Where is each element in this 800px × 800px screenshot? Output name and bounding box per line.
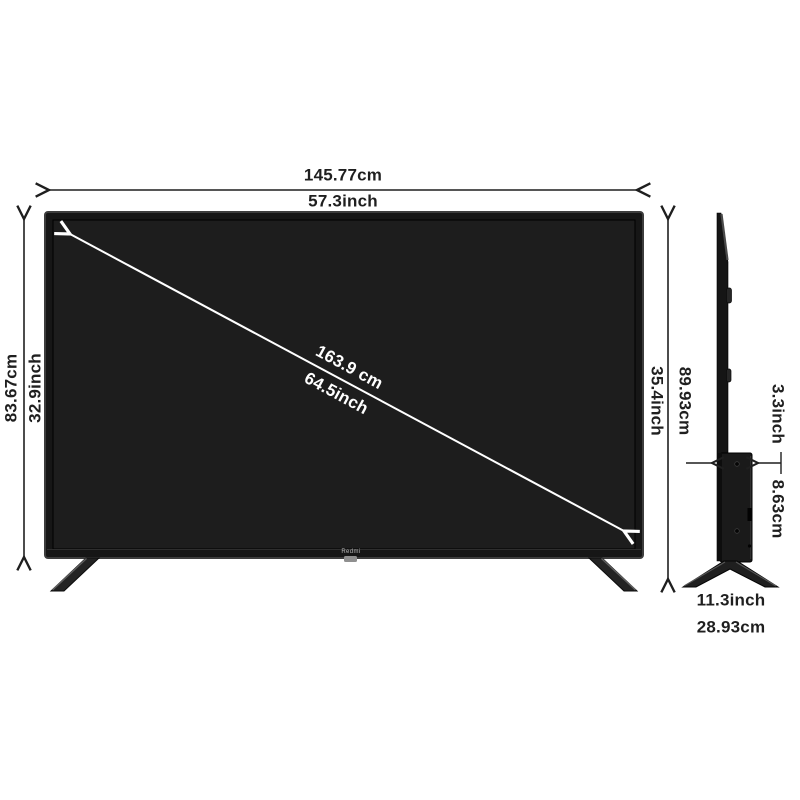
brand-logo: Redmi [341, 549, 360, 555]
stand-width-cm-label: 28.93cm [697, 619, 766, 638]
side-height-cm-label: 89.93cm [675, 367, 694, 436]
side-button-bump-lower [727, 369, 732, 382]
tv-side-stand [683, 561, 778, 587]
tv-left-foot [51, 558, 99, 591]
side-height-inch-label: 35.4inch [647, 366, 666, 436]
stand-width-inch-label: 11.3inch [697, 592, 766, 611]
tv-side-rear-box [720, 453, 752, 562]
tv-right-foot [589, 558, 637, 591]
depth-cm-label: 8.63cm [768, 480, 787, 539]
tv-side-view [683, 213, 778, 587]
rear-port-notch [748, 508, 752, 521]
width-cm-label: 145.77cm [304, 167, 382, 186]
rear-screw-lower [735, 529, 740, 534]
depth-inch-label: 3.3inch [768, 384, 787, 444]
side-front-strip [717, 453, 722, 561]
width-inch-label: 57.3inch [308, 193, 378, 212]
rear-dot [748, 544, 751, 547]
tv-dimension-diagram: 145.77cm 57.3inch 83.67cm 32.9inch 163.9… [0, 0, 800, 800]
tv-front-screen [53, 220, 635, 549]
height-inch-label: 32.9inch [27, 353, 46, 423]
ir-sensor-tab [344, 556, 357, 562]
side-button-bump-upper [727, 288, 732, 303]
rear-screw-upper [735, 462, 740, 467]
height-cm-label: 83.67cm [3, 354, 22, 423]
